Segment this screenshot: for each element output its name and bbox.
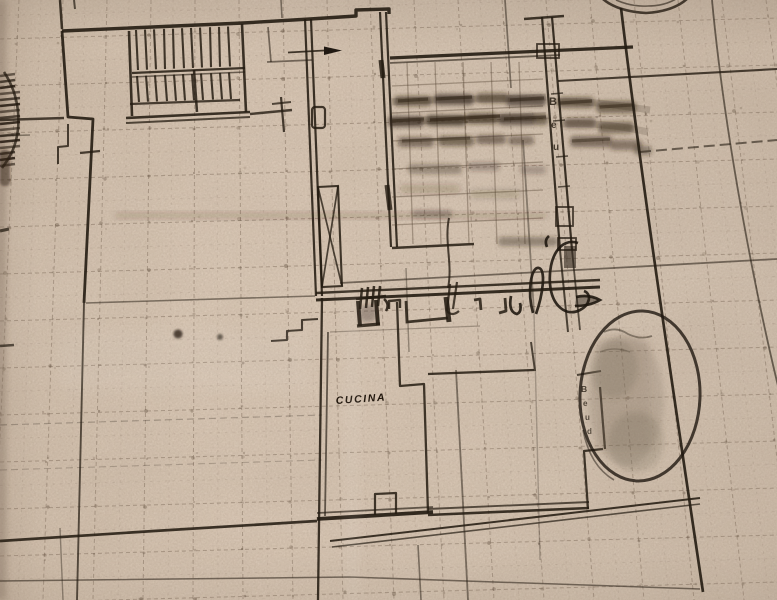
svg-text:e: e: [583, 399, 588, 408]
svg-text:d: d: [587, 427, 592, 436]
svg-text:e: e: [551, 120, 557, 131]
svg-text:u: u: [553, 142, 559, 153]
svg-text:B: B: [549, 96, 557, 108]
